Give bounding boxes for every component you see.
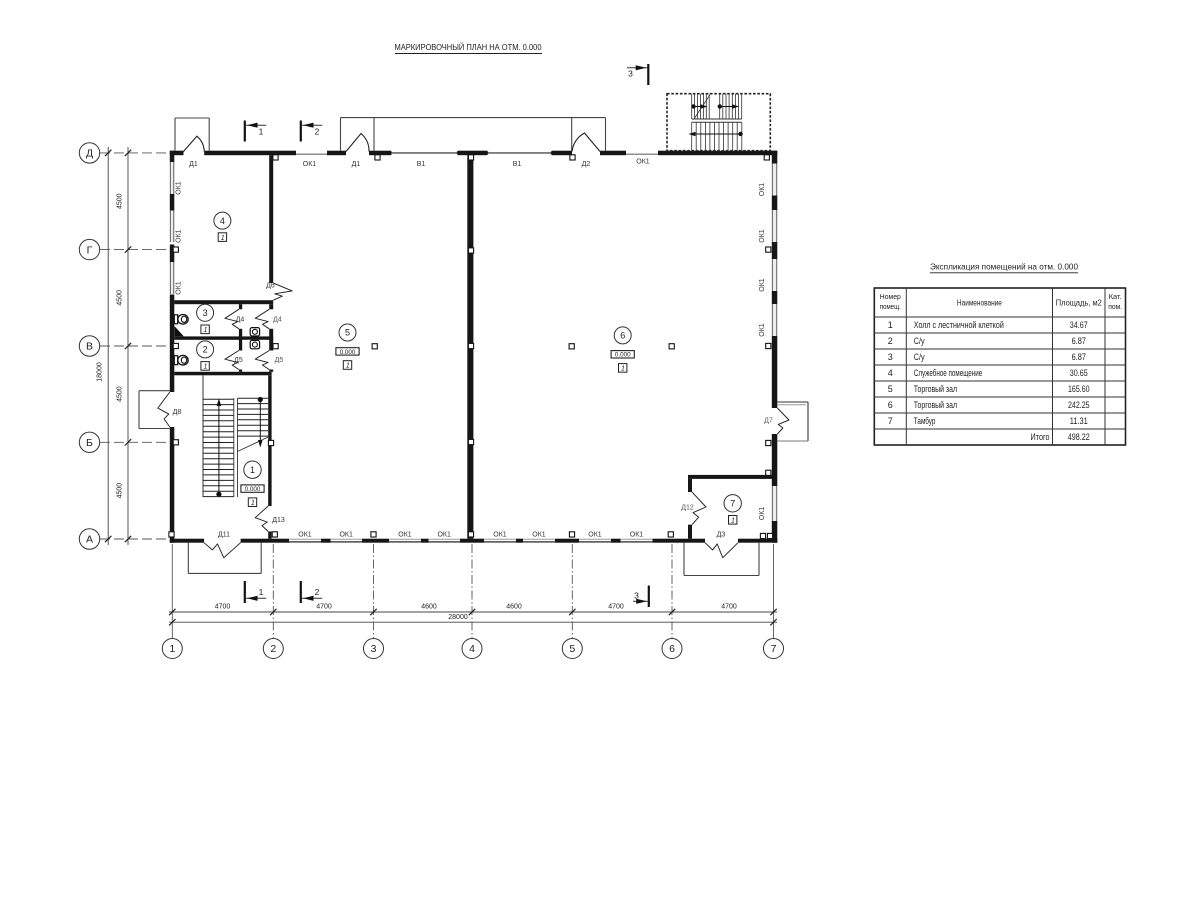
svg-text:4700: 4700 [608,604,624,611]
svg-text:Д2: Д2 [582,161,591,168]
svg-text:0.000: 0.000 [615,352,631,359]
svg-text:6: 6 [620,331,625,341]
svg-text:3: 3 [628,69,633,79]
svg-text:34.67: 34.67 [1070,320,1088,330]
svg-text:ОК1: ОК1 [298,531,312,538]
svg-text:5: 5 [569,643,575,655]
svg-text:2: 2 [203,345,208,355]
svg-text:7: 7 [888,416,893,426]
svg-text:Д7: Д7 [764,418,773,425]
svg-text:1: 1 [251,500,255,507]
svg-text:0.000: 0.000 [245,486,261,493]
svg-text:18000: 18000 [97,362,104,382]
svg-text:ОК1: ОК1 [759,507,766,521]
svg-text:Номер: Номер [880,292,901,301]
svg-text:А: А [86,534,93,546]
svg-text:Кат.: Кат. [1109,292,1122,301]
svg-text:4: 4 [888,368,893,378]
svg-text:5: 5 [345,328,350,338]
svg-text:7: 7 [730,499,735,509]
svg-text:4500: 4500 [117,193,124,209]
svg-text:Д13: Д13 [272,517,285,524]
svg-text:4: 4 [220,216,225,226]
svg-text:498.22: 498.22 [1068,432,1090,442]
svg-text:4700: 4700 [215,604,231,611]
svg-text:6.87: 6.87 [1072,336,1086,346]
svg-text:Б: Б [86,437,93,449]
svg-text:Площадь, м2: Площадь, м2 [1056,299,1103,308]
svg-text:Экспликация помещений на отм.: Экспликация помещений на отм. 0.000 [930,262,1078,272]
svg-text:МАРКИРОВОЧНЫЙ ПЛАН НА ОТМ. 0.0: МАРКИРОВОЧНЫЙ ПЛАН НА ОТМ. 0.000 [395,41,542,52]
svg-text:ОК1: ОК1 [759,323,766,337]
svg-text:ОК1: ОК1 [303,161,317,168]
svg-text:1: 1 [221,235,225,242]
svg-text:4500: 4500 [117,386,124,402]
svg-text:Д5: Д5 [234,357,243,364]
svg-text:В: В [86,341,93,353]
svg-text:28000: 28000 [448,614,468,621]
svg-text:ОК1: ОК1 [339,531,353,538]
svg-text:7: 7 [771,643,777,655]
svg-text:1: 1 [203,327,207,334]
svg-text:ОК1: ОК1 [630,531,644,538]
svg-text:2: 2 [888,336,893,346]
svg-text:Д4: Д4 [236,317,245,324]
svg-text:4600: 4600 [506,604,522,611]
svg-text:3: 3 [634,591,639,601]
svg-text:ОК1: ОК1 [759,183,766,197]
svg-text:Д8: Д8 [173,409,182,416]
svg-text:1: 1 [169,643,175,655]
svg-text:4700: 4700 [316,604,332,611]
svg-text:Д1: Д1 [189,161,198,168]
svg-text:ОК1: ОК1 [437,531,451,538]
svg-text:Д12: Д12 [681,505,694,512]
svg-text:С/у: С/у [914,352,925,362]
svg-text:11.31: 11.31 [1070,416,1088,426]
svg-text:4600: 4600 [421,604,437,611]
svg-text:помещ.: помещ. [880,302,901,311]
svg-text:0.000: 0.000 [340,349,356,356]
svg-text:ОК1: ОК1 [398,531,412,538]
svg-text:ОК1: ОК1 [493,531,507,538]
svg-text:1: 1 [346,363,350,370]
svg-text:4500: 4500 [117,483,124,499]
svg-text:Служебное помещение: Служебное помещение [914,368,982,378]
svg-text:В1: В1 [513,161,522,168]
svg-text:Наименование: Наименование [957,299,1002,308]
svg-text:1: 1 [888,320,893,330]
svg-text:4: 4 [469,643,475,655]
svg-text:Д5: Д5 [275,357,284,364]
svg-text:2: 2 [315,127,320,137]
svg-text:Д4: Д4 [273,317,282,324]
svg-text:242.25: 242.25 [1068,400,1090,410]
svg-text:4500: 4500 [117,290,124,306]
svg-text:ОК1: ОК1 [176,281,183,295]
svg-text:Итого: Итого [1031,432,1050,442]
svg-text:Д: Д [86,148,93,160]
svg-text:Тамбур: Тамбур [914,416,936,426]
svg-text:1: 1 [621,366,625,373]
svg-text:ОК1: ОК1 [176,229,183,243]
svg-text:ОК1: ОК1 [636,159,650,166]
svg-text:1: 1 [259,127,264,137]
svg-text:Д1: Д1 [352,161,361,168]
svg-text:Д6: Д6 [266,283,275,290]
svg-text:2: 2 [270,643,276,655]
svg-text:3: 3 [888,352,893,362]
svg-text:3: 3 [371,643,377,655]
svg-text:С/у: С/у [914,336,925,346]
svg-text:4700: 4700 [721,604,737,611]
svg-text:Д11: Д11 [218,532,230,539]
svg-text:6: 6 [888,400,893,410]
svg-text:6: 6 [669,643,675,655]
svg-text:Г: Г [87,244,93,256]
svg-text:В1: В1 [417,161,426,168]
svg-text:1: 1 [731,518,735,525]
svg-text:пом.: пом. [1108,302,1122,311]
svg-text:ОК1: ОК1 [588,531,602,538]
svg-text:5: 5 [888,384,893,394]
svg-text:ОК1: ОК1 [532,531,546,538]
svg-text:1: 1 [259,587,264,597]
svg-text:3: 3 [203,308,208,318]
svg-text:Торговый зал: Торговый зал [914,384,957,394]
svg-text:ОК1: ОК1 [759,278,766,292]
svg-text:Д3: Д3 [717,532,726,539]
svg-text:165.60: 165.60 [1068,384,1090,394]
svg-text:ОК1: ОК1 [176,181,183,195]
svg-text:30.65: 30.65 [1070,368,1088,378]
svg-text:ОК1: ОК1 [759,229,766,243]
svg-text:Холл с лестничной клеткой: Холл с лестничной клеткой [914,320,1004,330]
svg-text:Торговый зал: Торговый зал [914,400,957,410]
svg-text:2: 2 [315,587,320,597]
svg-text:6.87: 6.87 [1072,352,1086,362]
svg-text:1: 1 [203,364,207,371]
svg-text:1: 1 [250,465,255,475]
